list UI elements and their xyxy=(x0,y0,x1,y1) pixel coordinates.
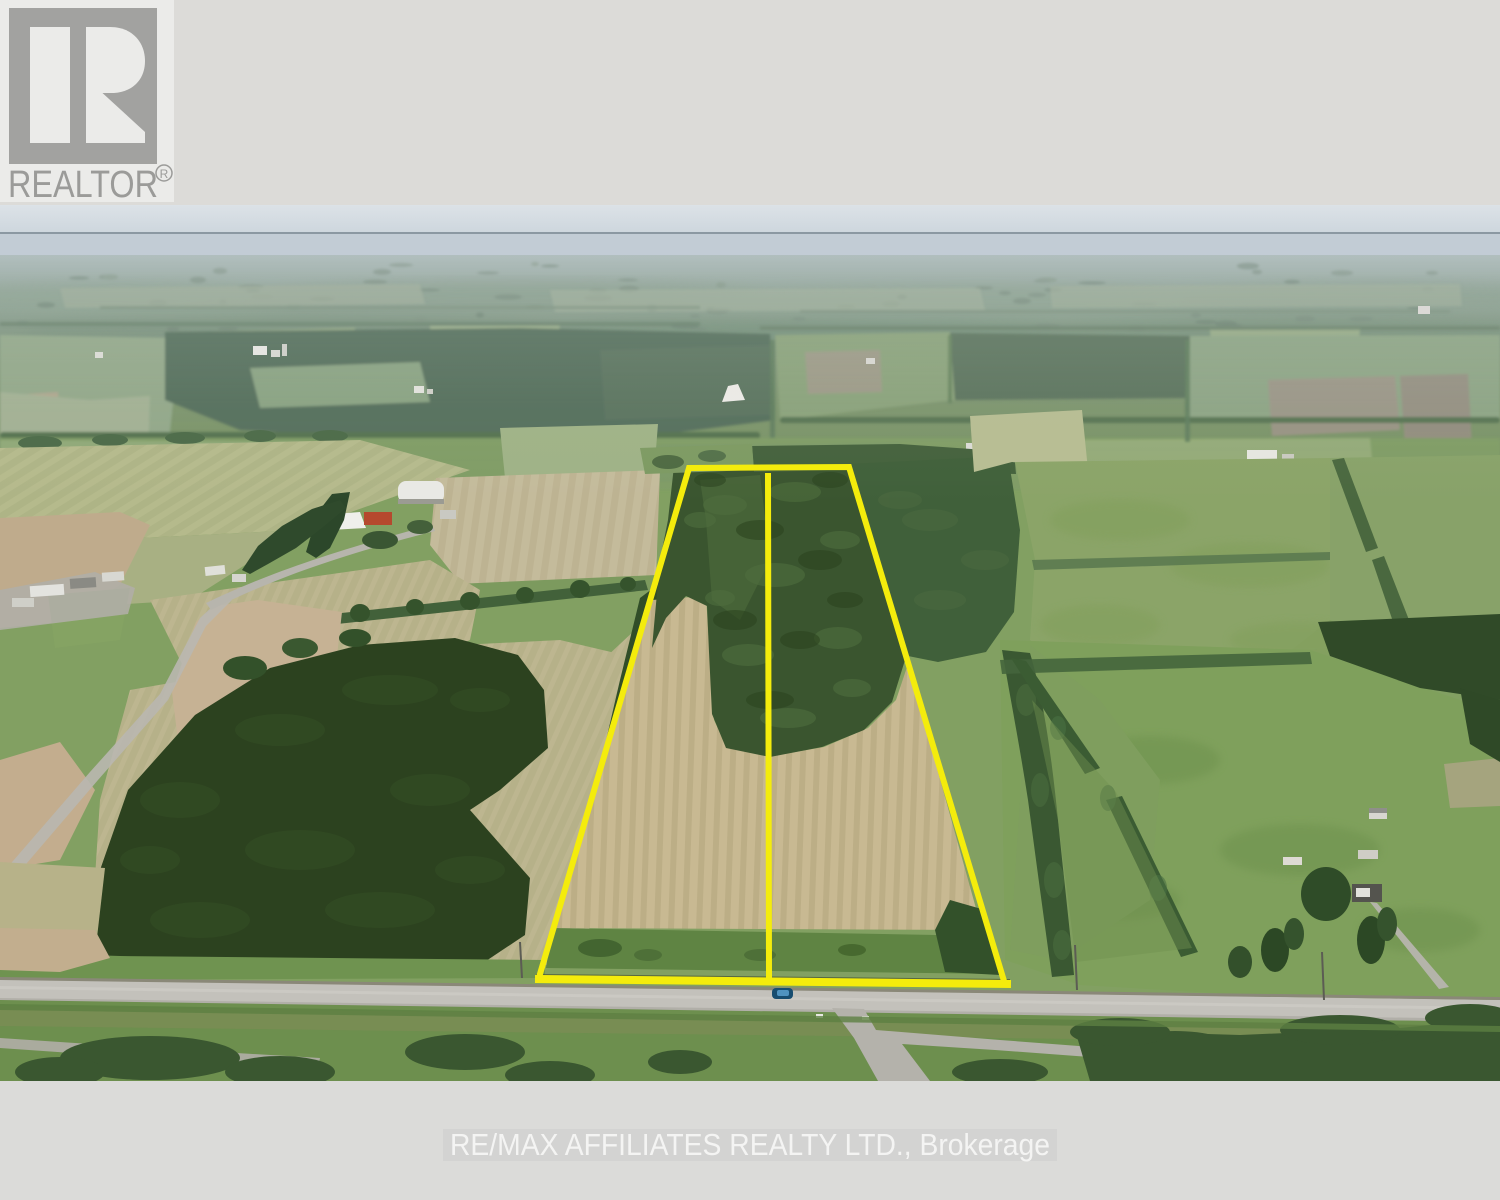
svg-text:RE/MAX AFFILIATES REALTY LTD.,: RE/MAX AFFILIATES REALTY LTD., Brokerage xyxy=(450,1127,1050,1162)
svg-text:REALTOR: REALTOR xyxy=(8,164,158,206)
svg-text:R: R xyxy=(160,167,169,181)
